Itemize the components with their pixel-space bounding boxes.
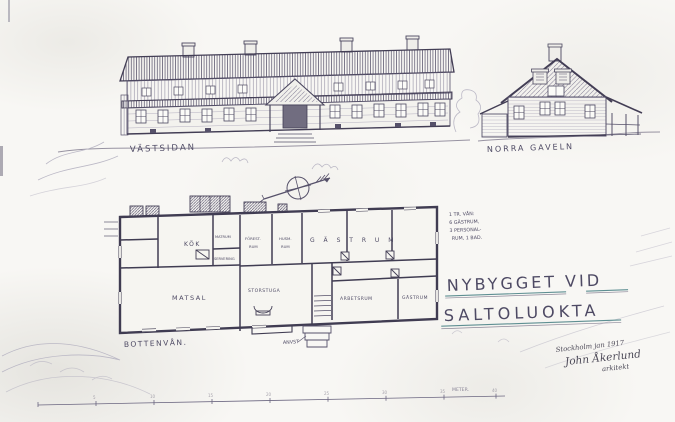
north-arrow-icon [260, 174, 330, 203]
room-label-husm-2: RUM [281, 244, 290, 249]
room-label-arbetsrum: ARBETSRUM [340, 296, 373, 302]
scale-tick-label: 35 [440, 389, 446, 394]
scale-tick-label: 5 [93, 395, 96, 400]
plan-notes: 1 TR. VÅN: 6 GÄSTRUM, 3 PERSONAL- RUM, 1… [449, 210, 482, 242]
room-label-matrum: MATRUM [215, 235, 231, 239]
room-label-gastrum-row: G Ä S T R U M [310, 237, 397, 244]
room-label-kok: KÖK [184, 241, 201, 248]
room-label-storstuga: STORSTUGA [248, 288, 281, 294]
scale-tick-label: 20 [266, 392, 272, 397]
entrance-steps [303, 326, 331, 347]
room-label-gastrum: GÄSTRUM [402, 294, 428, 301]
plan-title-label: BOTTENVÅN. [124, 338, 188, 349]
room-label-forest-1: FÖREST. [245, 236, 261, 241]
chimney-icon [549, 46, 561, 61]
entrance-label: ANVST [283, 339, 299, 346]
north-gable-elevation: NORRA GAVELN [480, 44, 642, 154]
room-label-husm-1: HUSM. [279, 236, 292, 241]
plan-note-line: 6 GÄSTRUM, [449, 218, 480, 226]
north-gable-label: NORRA GAVELN [487, 142, 574, 154]
scale-tick-label: 15 [208, 393, 214, 398]
drawing-canvas: VÄSTSIDAN NORRA GAVELN [0, 0, 675, 422]
room-label-servering: SERVERING [214, 257, 235, 261]
room-label-matsal: MATSAL [172, 294, 207, 302]
plan-note-line: 3 PERSONAL- [449, 227, 481, 234]
drawing-title: NYBYGGET VID SALTOLUOKTA [439, 270, 629, 329]
floor-plan: KÖK MATRUM SERVERING FÖREST. RUM HUSM. R… [104, 196, 438, 349]
scale-tick-label: 40 [492, 388, 498, 393]
west-elevation: VÄSTSIDAN [120, 36, 454, 155]
plan-note-line: RUM, 1 BAD. [452, 235, 483, 242]
west-elevation-label: VÄSTSIDAN [130, 142, 196, 155]
plan-note-line: 1 TR. VÅN: [449, 210, 475, 218]
signature-block: Stockholm jan 1917 John Åkerlund arkitek… [555, 337, 642, 378]
title-line-1: NYBYGGET VID [446, 271, 602, 295]
scanned-architectural-drawing: VÄSTSIDAN NORRA GAVELN [0, 0, 675, 422]
scale-bar: 5 10 15 20 25 30 35 40 METER. [38, 387, 505, 407]
scale-tick-label: 10 [150, 394, 156, 399]
signature-role: arkitekt [602, 362, 630, 373]
scale-unit-label: METER. [452, 387, 469, 393]
room-label-forest-2: RUM [249, 244, 258, 249]
scale-tick-label: 30 [382, 390, 388, 395]
scan-artifacts [0, 0, 9, 176]
scale-tick-label: 25 [324, 391, 330, 396]
